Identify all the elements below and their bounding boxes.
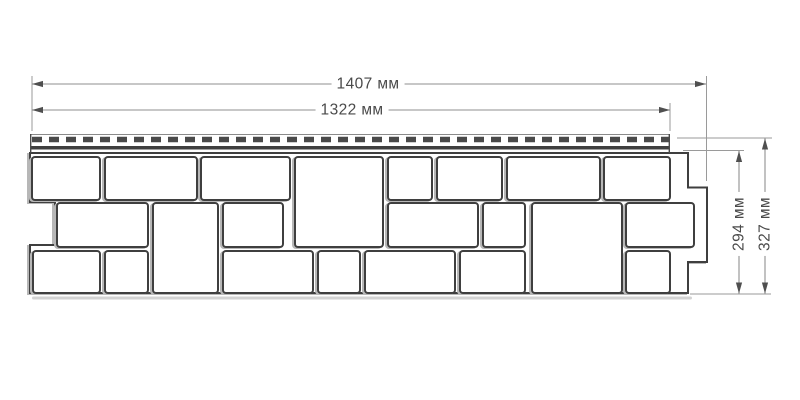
stone-block [604, 157, 670, 200]
stone-block [153, 203, 218, 293]
arrowhead [736, 283, 742, 294]
stone-block [223, 203, 283, 247]
arrowhead [762, 139, 768, 150]
arrowhead [32, 81, 43, 87]
hem-lock-band [30, 146, 670, 150]
stone-block [57, 203, 148, 247]
dim-label-length-full: 1407 мм [332, 75, 405, 92]
stone-block [318, 251, 360, 293]
stone-block [105, 251, 148, 293]
stone-block [32, 157, 100, 200]
panel-dimension-drawing: 1407 мм 1322 мм 294 мм 327 мм [0, 0, 800, 400]
stone-block [365, 251, 455, 293]
dim-label-height-full: 327 мм [756, 192, 773, 256]
dim-label-length-working: 1322 мм [316, 101, 389, 118]
stone-block [437, 157, 502, 200]
stone-block [626, 251, 670, 293]
stone-block [388, 203, 478, 247]
stone-block [105, 157, 197, 200]
stone-block [460, 251, 525, 293]
stone-block [483, 203, 525, 247]
arrowhead [659, 107, 670, 113]
dim-label-height-working: 294 мм [730, 192, 747, 256]
arrowhead [695, 81, 706, 87]
stone-block [507, 157, 600, 200]
stone-block [223, 251, 313, 293]
drawing-canvas [0, 0, 800, 400]
panel-bottom-shadow [32, 297, 692, 300]
stone-block [388, 157, 432, 200]
stone-block [626, 203, 694, 247]
stone-block [33, 251, 100, 293]
arrowhead [736, 151, 742, 162]
stone-block [532, 203, 622, 293]
arrowhead [32, 107, 43, 113]
nail-hem-strip [30, 134, 670, 153]
stone-block [295, 157, 383, 247]
stone-block [201, 157, 290, 200]
arrowhead [762, 283, 768, 294]
